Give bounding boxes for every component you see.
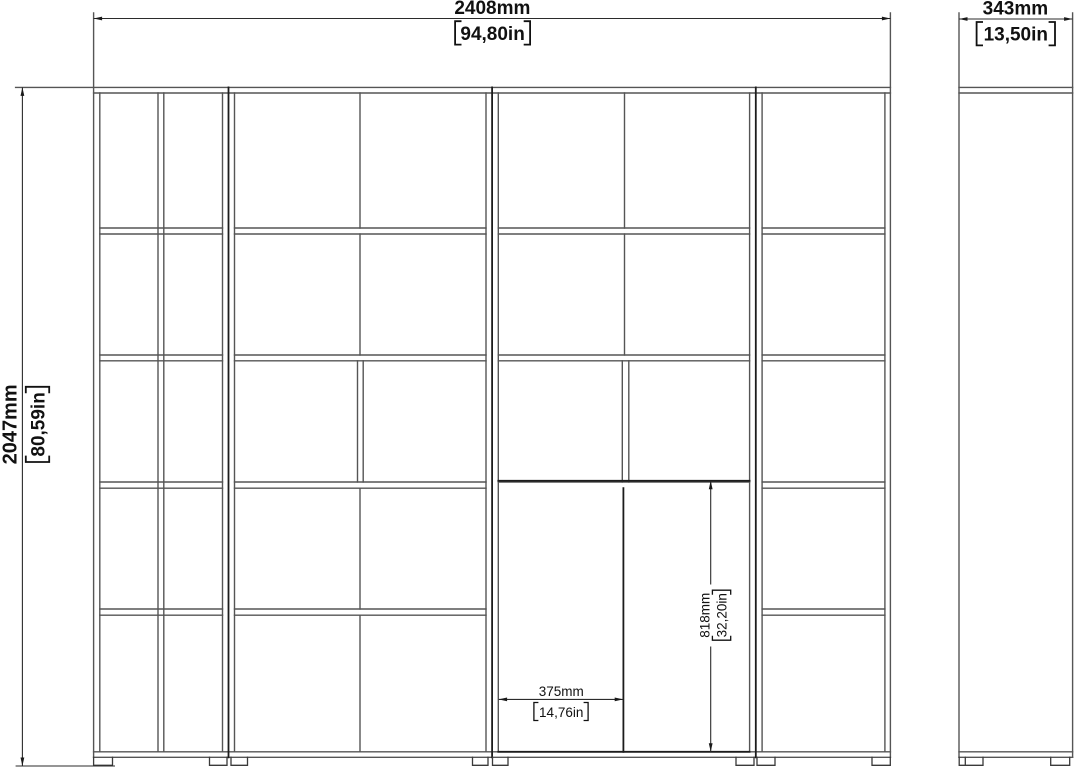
- svg-text:343mm: 343mm: [983, 0, 1049, 20]
- svg-text:818mm: 818mm: [698, 593, 713, 638]
- svg-text:2047mm: 2047mm: [0, 384, 22, 464]
- svg-text:80,59in: 80,59in: [29, 392, 50, 456]
- svg-text:13,50in: 13,50in: [984, 25, 1048, 46]
- svg-text:375mm: 375mm: [539, 684, 584, 699]
- svg-text:2408mm: 2408mm: [454, 0, 530, 19]
- svg-text:14,76in: 14,76in: [539, 705, 583, 720]
- svg-text:32,20in: 32,20in: [714, 593, 729, 637]
- svg-text:94,80in: 94,80in: [460, 24, 524, 45]
